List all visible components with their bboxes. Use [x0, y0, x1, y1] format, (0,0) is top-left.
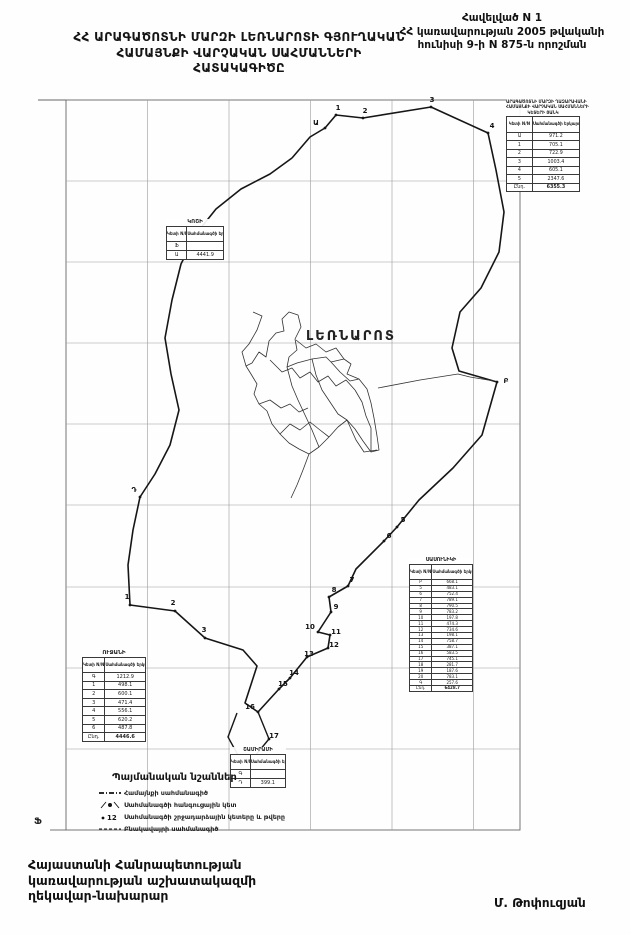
length-cell: 1212.9: [105, 673, 146, 682]
point-number-cell: 3: [83, 698, 105, 707]
boundary-point-dot: [328, 596, 331, 599]
settlement-boundary: [331, 362, 359, 381]
legend-item-label: Բնակավայրի սահմանագիծ: [124, 825, 218, 833]
footer-line-1: Հայաստանի Հանրապետության: [28, 857, 256, 873]
point-label: 15: [278, 680, 288, 688]
column-header: Սահմանագծի երկարությունը մ: [532, 116, 579, 132]
point-number-cell: 5: [83, 715, 105, 724]
point-label: 9: [334, 603, 339, 611]
title-line-1: ՀՀ ԱՐԱԳԱԾՈՏՆԻ ՄԱՐԶԻ ԼԵՌՆԱՐՈՏԻ ԳՅՈՒՂԱԿԱՆ: [58, 30, 420, 46]
length-cell: 971.2: [532, 132, 579, 141]
length-cell: 498.1: [105, 681, 146, 690]
column-header: Կետի N/N: [410, 565, 432, 580]
point-label: 17: [269, 732, 279, 740]
point-label: 4: [490, 122, 495, 130]
settlement-boundary: [312, 359, 347, 420]
table-title-line: ԿՈՇԻ: [166, 219, 224, 225]
length-cell: [187, 242, 224, 251]
settlement-boundary: [270, 360, 355, 390]
point-number-cell: 1: [83, 681, 105, 690]
point-number-cell: 5: [507, 175, 533, 184]
footer-line-3: ղեկավար-նախարար: [28, 888, 256, 904]
point-label: 12: [329, 641, 339, 649]
boundary-point-dot: [257, 711, 260, 714]
boundary-point-dot: [496, 381, 499, 384]
boundary-point-dot: [174, 610, 177, 613]
column-header: Սահմանագծի երկարությունը մ: [105, 658, 146, 673]
table-row: 4605.1: [507, 166, 580, 175]
table-total-row: Ընդ.4446.6: [83, 733, 146, 742]
point-label: 7: [350, 576, 355, 584]
settlement-name-label: ԼԵՌՆԱՐՈՏ: [306, 329, 396, 344]
point-label: 5: [401, 516, 406, 524]
boundary-point-dot: [317, 631, 320, 634]
segment-table: Կետի N/NՍահմանագծի երկարությունը մԳ1212.…: [82, 657, 146, 742]
point-label: Դ: [131, 486, 136, 494]
total-value-cell: 6428.7: [432, 686, 473, 692]
appendix-line-1: Հավելված N 1: [378, 12, 626, 26]
legend-item: Համայնքի սահմանագիծ: [98, 787, 298, 799]
point-number-cell: 1: [507, 141, 533, 150]
table-row: Ֆ: [167, 242, 224, 251]
settlement-boundary-line-icon: [98, 824, 124, 834]
boundary-length-table-t2: ԿՈՇԻԿետի N/NՍահմանագծի երկարությունը մՖԱ…: [166, 219, 224, 260]
table-row: 2722.9: [507, 149, 580, 158]
table-row: 4556.1: [83, 707, 146, 716]
point-number-cell: 3: [507, 158, 533, 167]
point-number-cell: Ա: [167, 251, 187, 260]
table-total-row: Ընդ.6428.7: [410, 686, 473, 692]
boundary-point-dot: [139, 496, 142, 499]
table-row: 1498.1: [83, 681, 146, 690]
signatory-title: Հայաստանի Հանրապետության կառավարության ա…: [28, 857, 256, 904]
point-number-cell: 4: [83, 707, 105, 716]
boundary-point-dot: [487, 132, 490, 135]
table-row: 6487.8: [83, 724, 146, 733]
length-cell: 2347.6: [532, 175, 579, 184]
table-row: Ա4441.9: [167, 251, 224, 260]
length-cell: 620.2: [105, 715, 146, 724]
table-total-row: Ընդ.6355.3: [507, 183, 580, 192]
boundary-point-dot: [396, 526, 399, 529]
point-label: 2: [171, 599, 176, 607]
table-title: ՈՒՋԱՆԻ: [82, 650, 146, 656]
settlement-boundary: [291, 454, 309, 498]
table-title: ՇԱՄԻՐԱՄԻ: [230, 747, 286, 753]
length-cell: 4441.9: [187, 251, 224, 260]
column-header: Կետի N/N: [231, 755, 251, 770]
turning-point-number-icon: 12: [98, 812, 124, 822]
point-number-cell: 2: [507, 149, 533, 158]
legend-item-label: Համայնքի սահմանագիծ: [124, 789, 208, 797]
legend-item: Բնակավայրի սահմանագիծ: [98, 823, 298, 835]
table-header-row: Կետի N/NՍահմանագծի երկարությունը մ: [167, 227, 224, 242]
point-label: Ա: [313, 119, 319, 127]
settlement-boundary: [287, 367, 319, 447]
point-label: 11: [331, 628, 341, 636]
length-cell: 722.9: [532, 149, 579, 158]
title-line-2: ՀԱՄԱՅՆՔԻ ՎԱՐՉԱԿԱՆ ՍԱՀՄԱՆՆԵՐԻ: [58, 46, 420, 62]
table-header-row: Կետի N/NՍահմանագծի երկարությունը մ: [231, 755, 286, 770]
footer-line-2: կառավարության աշխատակազմի: [28, 873, 256, 889]
table-header-row: Կետի N/NՍահմանագծի երկարությունը մ: [410, 565, 473, 580]
legend: Պայմանական նշաններ Համայնքի սահմանագիծՍա…: [98, 772, 298, 835]
total-value-cell: 6355.3: [532, 183, 579, 192]
legend-item-label: Սահմանագծի շրջադարձային կետերը և թվերը: [124, 813, 285, 821]
length-cell: 600.1: [105, 690, 146, 699]
legend-item-label: Սահմանագծի հանգուցային կետ: [124, 801, 236, 809]
total-label-cell: Ընդ.: [83, 733, 105, 742]
boundary-point-dot: [324, 127, 327, 130]
point-label: Բ: [503, 377, 508, 385]
table-title: ԱՐԱԳԱԾՈՏՆԻ ՄԱՐԶԻ ՂԱԶԱՐԱՎԱՆԻՀԱՄԱՅՆՔԻ ՎԱՐՉ…: [506, 99, 580, 115]
table-title-line: ՍԱՍՈՒՆԻԿԻ: [409, 558, 473, 563]
length-cell: 556.1: [105, 707, 146, 716]
point-label: 2: [363, 107, 368, 115]
community-boundary-line-icon: [98, 788, 124, 798]
signature-name: Մ. Թոփուզյան: [494, 896, 586, 910]
column-header: Սահմանագծի երկարությունը մ: [250, 755, 285, 770]
boundary-point-dot: [129, 604, 132, 607]
boundary-length-table-t4: ՈՒՋԱՆԻԿետի N/NՍահմանագծի երկարությունը մ…: [82, 650, 146, 742]
table-title-line: ՇԱՄԻՐԱՄԻ: [230, 747, 286, 753]
point-label: 3: [202, 626, 207, 634]
boundary-length-table-t3: ՍԱՍՈՒՆԻԿԻԿետի N/NՍահմանագծի երկարություն…: [409, 558, 473, 692]
length-cell: 605.1: [532, 166, 579, 175]
boundary-point-dot: [289, 677, 292, 680]
legend-title: Պայմանական նշաններ: [112, 772, 298, 783]
table-row: 52347.6: [507, 175, 580, 184]
point-number-cell: Գ: [83, 673, 105, 682]
column-header: Սահմանագծի երկարությունը մ: [187, 227, 224, 242]
total-label-cell: Ընդ.: [507, 183, 533, 192]
legend-item: Սահմանագծի հանգուցային կետ: [98, 799, 298, 811]
junction-point-icon: [98, 800, 124, 810]
column-header: Կետի N/N: [83, 658, 105, 673]
point-number-cell: Ֆ: [167, 242, 187, 251]
point-label: 3: [430, 96, 435, 104]
point-label: 13: [304, 650, 314, 658]
length-cell: 471.4: [105, 698, 146, 707]
boundary-point-dot: [278, 688, 281, 691]
legend-item: 12Սահմանագծի շրջադարձային կետերը և թվերը: [98, 811, 298, 823]
point-label: 16: [245, 703, 255, 711]
segment-table: Կետի N/NՍահմանագծի երկարությունը մԱ971.2…: [506, 116, 580, 193]
point-label: 6: [387, 532, 392, 540]
page-title: ՀՀ ԱՐԱԳԱԾՈՏՆԻ ՄԱՐԶԻ ԼԵՌՆԱՐՈՏԻ ԳՅՈՒՂԱԿԱՆ …: [58, 30, 420, 77]
title-line-3: ՀԱՏԱԿԱԳԻԾԸ: [58, 61, 420, 77]
table-row: 5620.2: [83, 715, 146, 724]
table-row: Ա971.2: [507, 132, 580, 141]
point-number-cell: 4: [507, 166, 533, 175]
column-header: Կետի N/N: [507, 116, 533, 132]
scanned-map-document: { "colors": { "ink": "#161616", "grid": …: [0, 0, 631, 935]
table-row: 2600.1: [83, 690, 146, 699]
table-row: 1705.1: [507, 141, 580, 150]
segment-table: Կետի N/NՍահմանագծի երկարությունը մՖԱ4441…: [166, 226, 224, 260]
boundary-point-dot: [204, 637, 207, 640]
point-number-cell: 2: [83, 690, 105, 699]
total-label-cell: Ընդ.: [410, 686, 432, 692]
point-label: 8: [332, 586, 337, 594]
column-header: Կետի N/N: [167, 227, 187, 242]
point-number-cell: 6: [83, 724, 105, 733]
boundary-point-dot: [430, 106, 433, 109]
column-header: Սահմանագծի երկարությունը մ: [432, 565, 473, 580]
frame-corner-mark: Ֆ: [34, 817, 42, 827]
boundary-point-dot: [362, 117, 365, 120]
table-row: 31003.4: [507, 158, 580, 167]
boundary-point-dot: [330, 611, 333, 614]
boundary-point-dot: [347, 585, 350, 588]
segment-table: Կետի N/NՍահմանագծի երկարությունը մԲ668.1…: [409, 564, 473, 692]
table-title: ՍԱՍՈՒՆԻԿԻ: [409, 558, 473, 563]
boundary-length-table-t1: ԱՐԱԳԱԾՈՏՆԻ ՄԱՐԶԻ ՂԱԶԱՐԱՎԱՆԻՀԱՄԱՅՆՔԻ ՎԱՐՉ…: [506, 99, 580, 192]
table-title-line: ՈՒՋԱՆԻ: [82, 650, 146, 656]
point-label: 14: [289, 669, 299, 677]
point-label: 1: [125, 593, 130, 601]
boundary-point-dot: [383, 540, 386, 543]
table-row: 3471.4: [83, 698, 146, 707]
point-label: 10: [305, 623, 315, 631]
svg-text:12: 12: [107, 814, 117, 822]
point-number-cell: Ա: [507, 132, 533, 141]
legend-items: Համայնքի սահմանագիծՍահմանագծի հանգուցայի…: [98, 787, 298, 835]
boundary-point-dot: [335, 114, 338, 117]
table-header-row: Կետի N/NՍահմանագծի երկարությունը մ: [507, 116, 580, 132]
point-label: 1: [336, 104, 341, 112]
length-cell: 487.8: [105, 724, 146, 733]
table-row: Գ1212.9: [83, 673, 146, 682]
table-title: ԿՈՇԻ: [166, 219, 224, 225]
table-header-row: Կետի N/NՍահմանագծի երկարությունը մ: [83, 658, 146, 673]
table-title-line: ԿԵՏԵՐԻ ՑԱՆԿ: [506, 110, 580, 115]
length-cell: 1003.4: [532, 158, 579, 167]
length-cell: 705.1: [532, 141, 579, 150]
total-value-cell: 4446.6: [105, 733, 146, 742]
table-title-line: ՀԱՄԱՅՆՔԻ ՎԱՐՉԱԿԱՆ ՍԱՀՄԱՆՆԵՐԻ: [506, 104, 580, 109]
